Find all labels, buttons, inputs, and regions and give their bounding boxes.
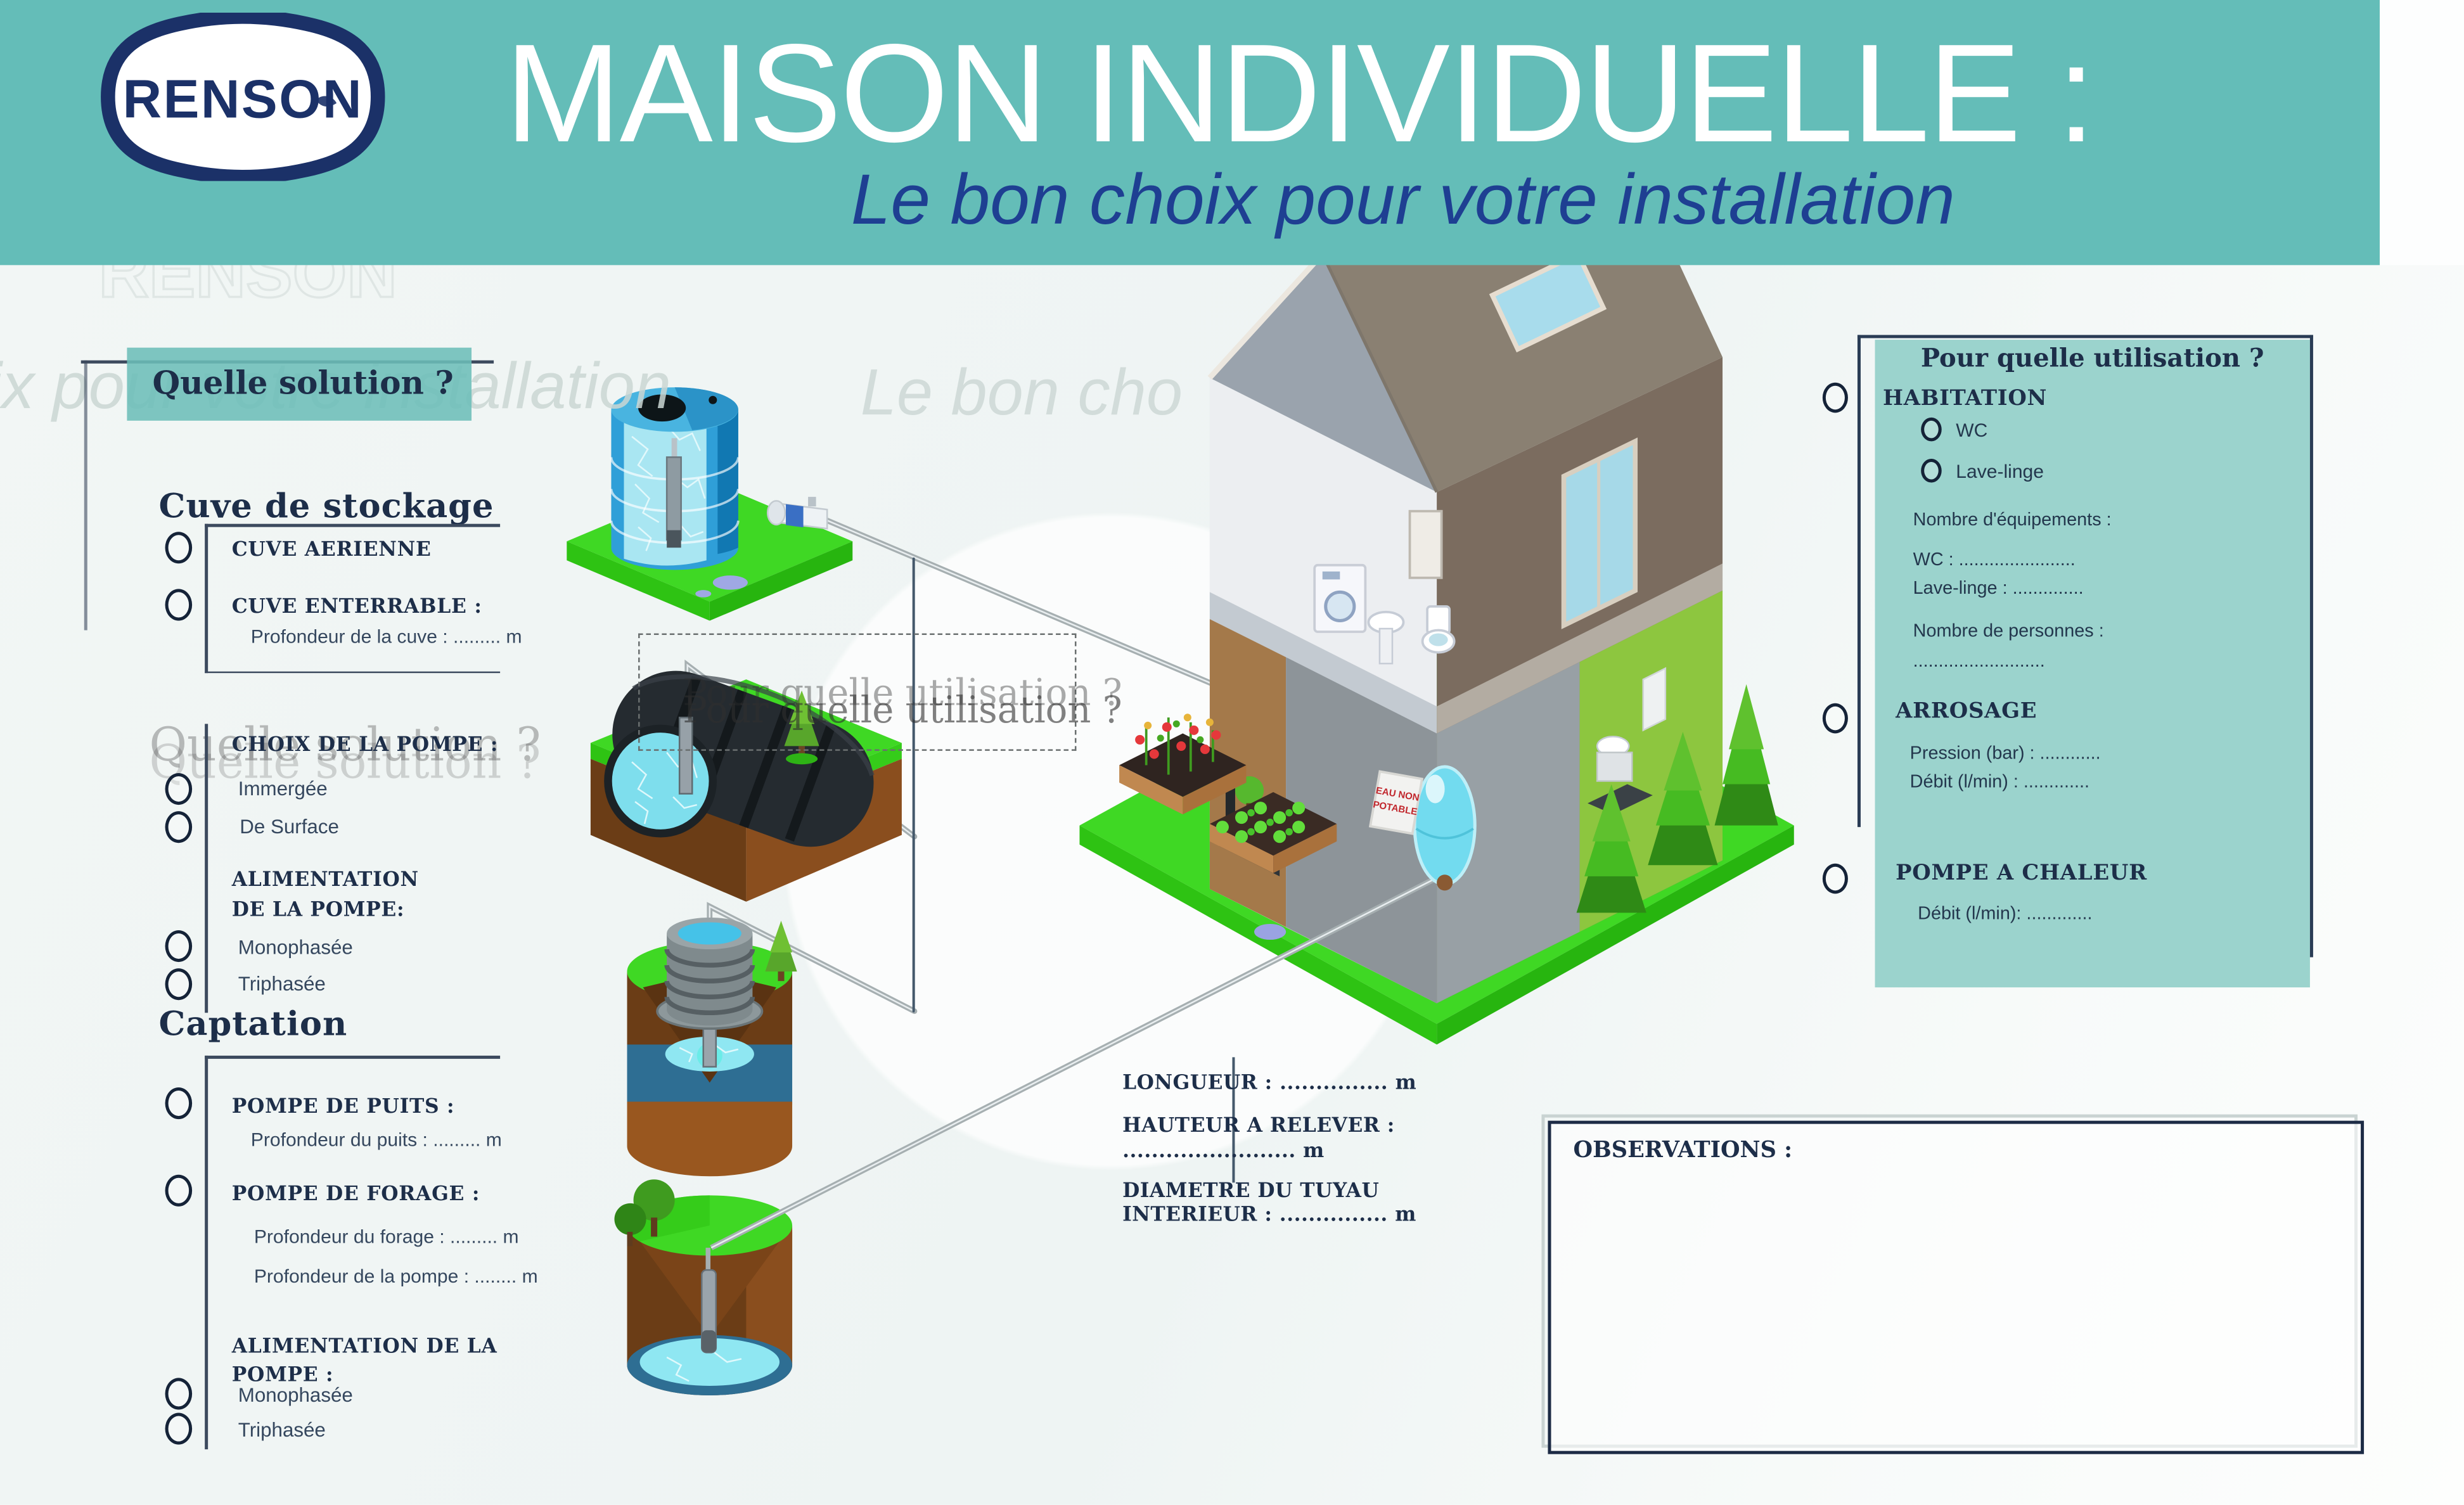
divider xyxy=(205,724,208,1013)
radio-de-surface[interactable] xyxy=(165,811,193,843)
radio-arrosage[interactable] xyxy=(1823,703,1848,734)
radio-pompe-a-chaleur[interactable] xyxy=(1823,864,1848,894)
option-de-surface: De Surface xyxy=(240,816,339,838)
ghost-utilisation-box xyxy=(638,634,1076,751)
option-monophasee: Monophasée xyxy=(238,937,353,959)
option-pompe-de-puits: POMPE DE PUITS : xyxy=(232,1094,455,1118)
divider xyxy=(205,672,500,674)
radio-cuve-aerienne[interactable] xyxy=(165,532,193,563)
option-pompe-a-chaleur: POMPE A CHALEUR xyxy=(1896,861,2147,886)
label-hauteur: HAUTEUR A RELEVER : xyxy=(1122,1113,1395,1137)
radio-triphasee[interactable] xyxy=(165,968,193,1000)
divider xyxy=(205,1056,500,1059)
divider xyxy=(205,524,500,527)
radio-pompe-de-puits[interactable] xyxy=(165,1087,193,1119)
radio-pompe-de-forage[interactable] xyxy=(165,1175,193,1207)
radio-lave-linge[interactable] xyxy=(1921,459,1942,483)
radio-captation-monophasee[interactable] xyxy=(165,1378,193,1409)
page-subtitle: Le bon choix pour votre installation xyxy=(851,159,1955,241)
option-cuve-enterrable: CUVE ENTERRABLE : xyxy=(232,594,482,618)
field-debit-pac: Débit (l/min): ............. xyxy=(1918,905,2092,924)
radio-immergee[interactable] xyxy=(165,773,193,805)
radio-captation-triphasee[interactable] xyxy=(165,1413,193,1445)
radio-wc[interactable] xyxy=(1921,418,1942,442)
option-habitation: HABITATION xyxy=(1883,386,2047,411)
field-profondeur-pompe: Profondeur de la pompe : ........ m xyxy=(254,1265,538,1288)
page: EAU NON POTABLE xyxy=(0,0,2464,1505)
option-captation-triphasee: Triphasée xyxy=(238,1419,326,1442)
divider xyxy=(205,524,208,673)
label-diametre-1: DIAMETRE DU TUYAU xyxy=(1122,1178,1379,1202)
borehole-illustration xyxy=(614,1179,792,1395)
field-wc-count: WC : ....................... xyxy=(1913,551,2076,570)
option-wc: WC xyxy=(1956,419,1987,441)
observations-label: OBSERVATIONS : xyxy=(1574,1138,1793,1163)
radio-habitation[interactable] xyxy=(1823,383,1848,413)
field-profondeur-forage: Profondeur du forage : ......... m xyxy=(254,1226,519,1248)
option-cuve-aerienne: CUVE AERIENNE xyxy=(232,537,432,561)
field-lave-linge-count: Lave-linge : .............. xyxy=(1913,579,2084,598)
divider xyxy=(1858,335,2313,338)
usage-panel-title: Pour quelle utilisation ? xyxy=(1875,343,2310,373)
captation-power-heading-1: ALIMENTATION DE LA xyxy=(232,1333,497,1357)
option-pompe-de-forage: POMPE DE FORAGE : xyxy=(232,1181,480,1205)
option-triphasee: Triphasée xyxy=(238,973,326,996)
option-captation-monophasee: Monophasée xyxy=(238,1384,353,1406)
field-debit-arrosage: Débit (l/min) : ............. xyxy=(1910,773,2089,792)
pump-choice-heading: CHOIX DE LA POMPE : xyxy=(232,732,498,756)
header-corner xyxy=(2380,0,2464,265)
divider xyxy=(2310,335,2313,957)
question-label: Quelle solution ? xyxy=(152,364,453,402)
label-nombre-equipements: Nombre d'équipements : xyxy=(1913,511,2112,530)
field-profondeur-puits: Profondeur du puits : ......... m xyxy=(251,1129,502,1151)
radio-monophasee[interactable] xyxy=(165,930,193,962)
section-captation-heading: Captation xyxy=(159,1003,348,1043)
captation-power-heading-2: POMPE : xyxy=(232,1362,334,1386)
observations-box xyxy=(1548,1121,2364,1454)
field-profondeur-cuve: Profondeur de la cuve : ......... m xyxy=(251,625,522,648)
divider xyxy=(205,1056,208,1449)
label-nombre-personnes: Nombre de personnes : xyxy=(1913,622,2104,641)
option-arrosage: ARROSAGE xyxy=(1896,698,2037,724)
page-title: MAISON INDIVIDUELLE : xyxy=(505,13,2095,175)
field-hauteur: ........................ m xyxy=(1122,1138,1325,1162)
option-lave-linge: Lave-linge xyxy=(1956,460,2044,482)
well-illustration xyxy=(627,918,797,1176)
divider xyxy=(84,361,87,631)
renson-logo: RENSON xyxy=(92,13,394,181)
divider xyxy=(1858,335,1861,828)
radio-cuve-enterrable[interactable] xyxy=(165,589,193,620)
pump-power-heading-1: ALIMENTATION xyxy=(232,867,419,891)
section-storage-heading: Cuve de stockage xyxy=(159,486,494,526)
field-longueur: LONGUEUR : ............... m xyxy=(1122,1070,1416,1094)
pump-power-heading-2: DE LA POMPE: xyxy=(232,897,405,921)
aerial-tank-illustration xyxy=(567,387,852,620)
field-nombre-personnes: .......................... xyxy=(1913,653,2045,672)
surface-pump-illustration xyxy=(767,497,827,528)
label-diametre-2: INTERIEUR : ............... m xyxy=(1122,1201,1416,1226)
field-pression: Pression (bar) : ............ xyxy=(1910,745,2101,764)
option-immergee: Immergée xyxy=(238,778,328,800)
